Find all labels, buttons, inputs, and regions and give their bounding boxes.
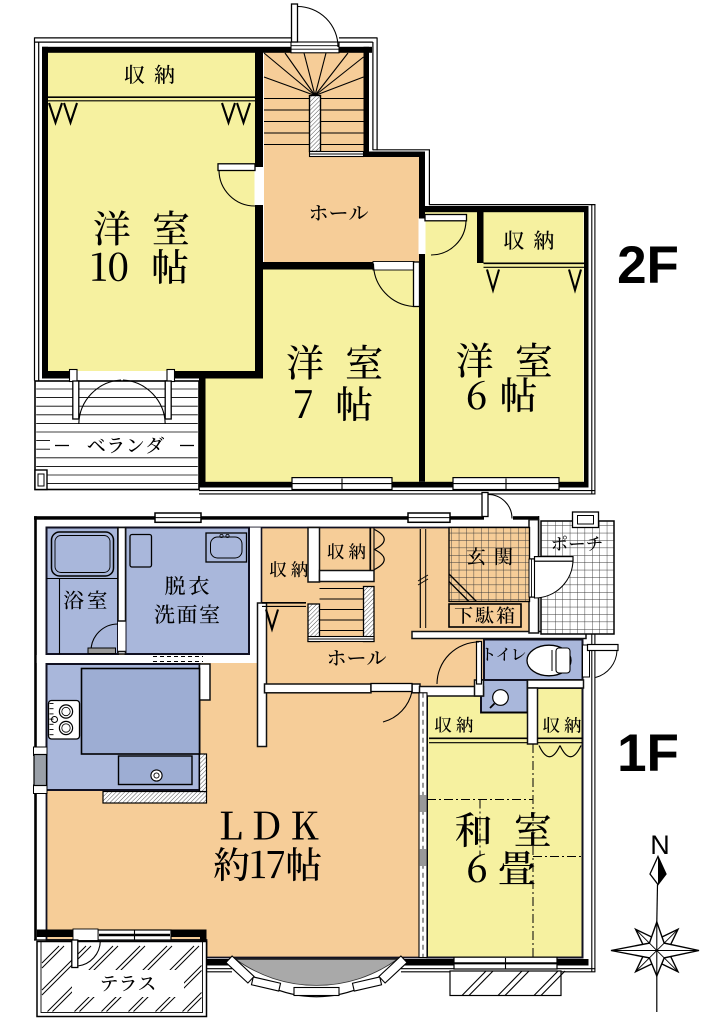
svg-text:2F: 2F [617, 236, 679, 295]
svg-text:1F: 1F [617, 724, 679, 783]
svg-text:N: N [650, 830, 670, 860]
